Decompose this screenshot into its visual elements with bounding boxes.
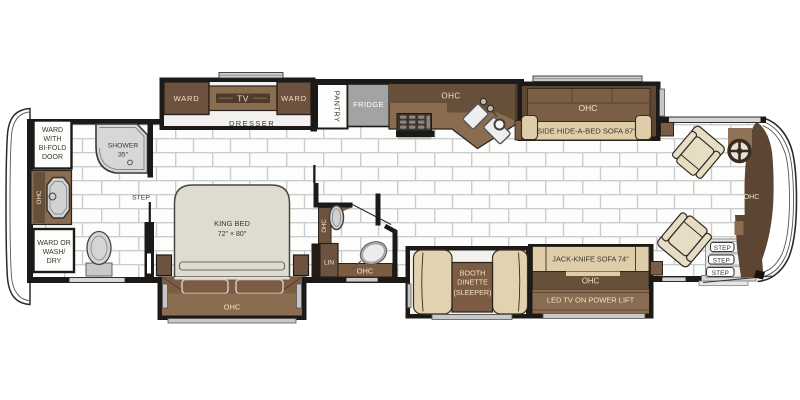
svg-text:LIN: LIN xyxy=(324,260,334,267)
svg-text:OHC: OHC xyxy=(322,219,328,233)
svg-text:STEP: STEP xyxy=(132,195,150,202)
svg-text:OHC: OHC xyxy=(224,303,241,312)
svg-text:OHC: OHC xyxy=(357,267,374,276)
svg-text:OHC: OHC xyxy=(579,103,598,113)
svg-text:OHC: OHC xyxy=(582,277,600,286)
svg-text:KING BED: KING BED xyxy=(214,219,250,228)
svg-text:STEP: STEP xyxy=(712,270,729,277)
svg-text:(SLEEPER): (SLEEPER) xyxy=(454,288,492,297)
svg-text:WARD: WARD xyxy=(42,127,63,134)
svg-text:BOOTH: BOOTH xyxy=(460,269,486,278)
svg-text:TV: TV xyxy=(237,94,249,104)
svg-text:FRIDGE: FRIDGE xyxy=(353,100,384,109)
svg-text:DRESSER: DRESSER xyxy=(229,119,275,128)
svg-text:BI-FOLD: BI-FOLD xyxy=(39,145,67,152)
svg-text:OHC: OHC xyxy=(36,190,43,204)
svg-text:DOOR: DOOR xyxy=(42,154,63,161)
svg-text:PANTRY: PANTRY xyxy=(333,91,342,123)
svg-text:72″ × 80″: 72″ × 80″ xyxy=(218,231,247,238)
svg-text:WASH/: WASH/ xyxy=(43,249,66,256)
svg-text:DRY: DRY xyxy=(47,258,62,265)
svg-text:OHC: OHC xyxy=(744,194,760,201)
svg-text:DINETTE: DINETTE xyxy=(457,278,488,287)
svg-text:SHOWER: SHOWER xyxy=(108,143,139,150)
svg-text:JACK-KNIFE SOFA 74″: JACK-KNIFE SOFA 74″ xyxy=(552,255,629,264)
svg-text:WARD: WARD xyxy=(174,94,200,103)
svg-text:SIDE HIDE-A-BED SOFA 87″: SIDE HIDE-A-BED SOFA 87″ xyxy=(537,127,636,136)
svg-text:WITH: WITH xyxy=(44,136,62,143)
svg-text:WARD OR: WARD OR xyxy=(37,240,71,247)
svg-text:LED TV ON POWER LIFT: LED TV ON POWER LIFT xyxy=(547,296,635,305)
svg-text:WARD: WARD xyxy=(281,94,307,103)
svg-text:35″: 35″ xyxy=(118,152,129,159)
svg-text:STEP: STEP xyxy=(714,245,731,252)
svg-text:STEP: STEP xyxy=(713,258,730,265)
svg-text:OHC: OHC xyxy=(441,92,460,101)
